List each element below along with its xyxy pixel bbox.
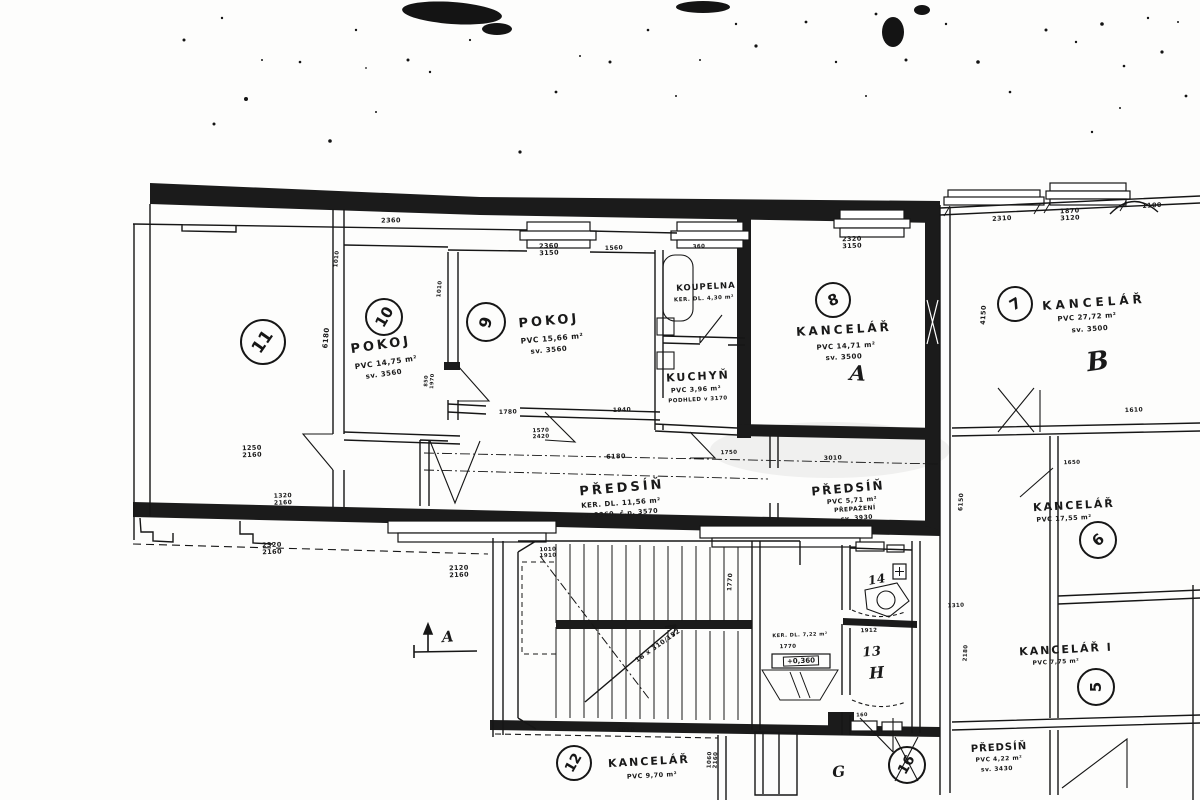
dim-label: 1100: [1142, 202, 1162, 210]
elevator-shaft: [762, 670, 838, 700]
dim-label: 1770: [727, 573, 735, 592]
dim-label: 6150: [958, 493, 966, 512]
dim-label: 1060 2160: [707, 751, 720, 769]
dim-label: 2360 3150: [539, 243, 559, 258]
dim-label: 1610: [1125, 407, 1144, 415]
dim-label: 2360: [381, 217, 401, 224]
dim-label: 4150: [980, 305, 988, 325]
section-mark-label: A: [441, 628, 454, 645]
dim-label: 2320 2160: [262, 542, 282, 557]
interior-walls: [133, 196, 1200, 800]
dim-label: 1010 1910: [539, 547, 556, 560]
dim-label: 2310: [992, 215, 1012, 223]
dim-label: 2180: [963, 644, 970, 661]
dim-label: 1560: [605, 245, 624, 252]
room-number-13: 13: [862, 645, 882, 661]
dim-label: 1940: [613, 407, 632, 414]
dim-label: 1310: [947, 603, 964, 610]
room-number-12: 12: [556, 745, 592, 781]
dim-label: 1870 3120: [1060, 207, 1080, 222]
elevation-label: +0,360: [783, 655, 819, 666]
unit-letter-a: A: [849, 361, 867, 385]
room-number-11: 11: [240, 319, 286, 365]
toilet-icon: [865, 583, 909, 617]
dim-label: 360: [693, 244, 706, 250]
dim-label: 4010: [617, 727, 636, 734]
room-number-16: 16: [888, 746, 926, 784]
dim-label: 1750: [720, 450, 737, 457]
room-number-10: 10: [365, 298, 403, 336]
dim-label: 160: [856, 713, 868, 719]
room-number-9: 9: [466, 302, 506, 342]
unit-letter-b: B: [1085, 346, 1111, 377]
room-number-5: 5: [1077, 668, 1115, 706]
dim-label: 1320 2160: [274, 493, 293, 507]
dim-label: 1250 2160: [242, 445, 262, 460]
plan-linework: [0, 0, 1200, 800]
dim-label: 2320 3150: [842, 236, 862, 251]
room-number-8: 8: [815, 282, 851, 318]
room-number-7: 7: [997, 286, 1033, 322]
floor-plan: 11 10 9 8 7 6 5 12 16 POKOJ PVC 14,75 m²…: [0, 0, 1200, 800]
stove-icon: [657, 352, 674, 369]
dim-label: 1780: [499, 409, 518, 416]
dim-label: 2120 2160: [449, 565, 469, 580]
unit-letter-g: G: [832, 763, 847, 781]
dim-label: 6180: [606, 453, 626, 461]
dim-label: 850 1970: [424, 373, 436, 389]
room-number-6: 6: [1079, 521, 1117, 559]
dim-label: 1912: [860, 628, 877, 635]
dim-label: 1770: [779, 644, 796, 651]
dim-label: 3010: [824, 455, 843, 462]
unit-letter-h: H: [868, 664, 885, 683]
dim-label: 1650: [1063, 460, 1080, 467]
dim-label: 1570 2420: [532, 428, 549, 441]
